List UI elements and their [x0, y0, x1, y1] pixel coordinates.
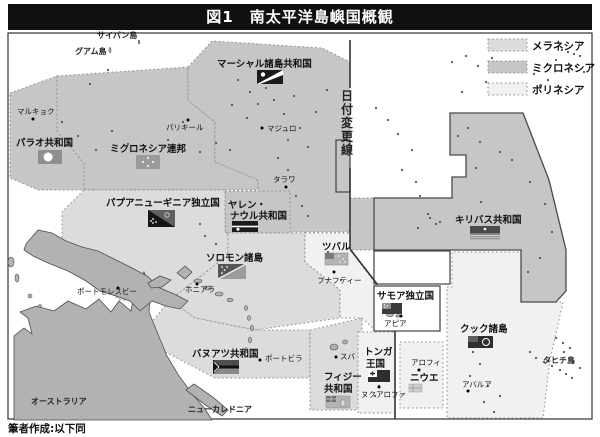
- place-label: グアム島: [75, 46, 106, 56]
- city-label: ポートビラ: [265, 354, 303, 363]
- island-dot: [472, 351, 474, 353]
- vanuatu-flag: [213, 360, 239, 374]
- island-dot: [579, 55, 581, 57]
- city-label: アロフィ: [411, 358, 441, 367]
- island-dot: [417, 227, 419, 229]
- fiji-island: [343, 340, 348, 344]
- island-dot: [529, 351, 531, 353]
- city-label: パリキール: [166, 123, 204, 132]
- maluku-island: [8, 257, 14, 267]
- cook-flag-part: [468, 336, 478, 342]
- country-label: パプアニューギニア独立国: [106, 197, 220, 209]
- island-dot: [511, 159, 513, 161]
- solomon-flag-part: [226, 266, 228, 268]
- island-dot: [307, 146, 309, 148]
- nauru-flag-part: [237, 228, 240, 231]
- palau-flag-part: [44, 153, 53, 162]
- island-dot: [467, 127, 469, 129]
- vanuatu-island: [251, 325, 254, 331]
- cook-flag: [468, 336, 493, 348]
- fiji-island: [330, 344, 338, 350]
- island-dot: [415, 181, 417, 183]
- city-label: フナフティー: [317, 276, 362, 285]
- solomon-island: [227, 298, 233, 302]
- country-label: ニウエ: [410, 373, 439, 384]
- figure-title-bar: 図1 南太平洋島嶼国概観: [8, 4, 592, 30]
- island-dot: [465, 55, 467, 57]
- nauru-flag-part: [232, 226, 258, 228]
- vanuatu-island: [245, 306, 248, 311]
- country-label: パラオ共和国: [16, 137, 73, 149]
- island-dot: [480, 201, 482, 203]
- island-dot: [551, 365, 553, 367]
- island-dot: [273, 99, 275, 101]
- country-label: クック諸島: [460, 323, 508, 335]
- capital-dot: [285, 186, 288, 189]
- samoa-flag-part: [382, 303, 391, 309]
- country-label: マーシャル諸島共和国: [217, 58, 312, 70]
- place-label: ニューカレドニア: [188, 405, 252, 414]
- island-dot: [569, 347, 571, 349]
- island-dot: [299, 127, 301, 129]
- island-dot: [555, 59, 557, 61]
- island-dot: [499, 151, 501, 153]
- island-dot: [555, 337, 557, 339]
- country-label: キリバス共和国: [455, 214, 522, 226]
- capital-dot: [333, 271, 336, 274]
- island-dot: [479, 141, 481, 143]
- png-flag-part: [152, 222, 154, 224]
- island-dot: [61, 121, 63, 123]
- samoa-flag-part: [384, 304, 385, 305]
- tonga-flag: [368, 370, 390, 382]
- country-label: ソロモン諸島: [206, 252, 264, 264]
- fiji-flag-part: [341, 400, 345, 406]
- island-dot: [237, 79, 239, 81]
- island-dot: [562, 342, 564, 344]
- country-label: 王国: [366, 359, 385, 370]
- island-dot: [439, 221, 441, 223]
- island-dot: [204, 235, 206, 237]
- island-dot: [535, 357, 537, 359]
- island-dot: [265, 87, 267, 89]
- island-dot: [375, 107, 377, 109]
- island-dot: [539, 257, 541, 259]
- marshall-flag-part: [261, 72, 265, 76]
- capital-dot: [261, 127, 264, 130]
- legend-swatch-pol: [488, 83, 527, 95]
- island-dot: [411, 149, 413, 151]
- png-flag-part: [150, 220, 152, 222]
- island-dot: [307, 215, 309, 217]
- island-dot: [326, 89, 328, 91]
- island-dot: [529, 181, 531, 183]
- island-dot: [475, 167, 477, 169]
- fiji-flag: [326, 396, 350, 408]
- city-label: ポートモレスビー: [77, 287, 137, 296]
- country-label: フィジー: [324, 372, 362, 383]
- city-label: スバ: [340, 352, 355, 361]
- country-label: ナウル共和国: [230, 210, 287, 222]
- kiribati-flag-part: [484, 228, 487, 231]
- capital-dot: [418, 369, 421, 372]
- capital-dot: [187, 119, 190, 122]
- solomon-island: [215, 292, 223, 296]
- small-island: [39, 305, 42, 308]
- legend-label: メラネシア: [532, 41, 585, 53]
- samoa-flag: [382, 303, 402, 314]
- place-label: サイパン島: [97, 30, 137, 40]
- figure-page: 日付変更線パラオ共和国ミクロネシア連邦マーシャル諸島共和国ヤレン・ナウル共和国キ…: [0, 0, 600, 437]
- city-label: ヌクアロファ: [361, 390, 406, 399]
- island-dot: [491, 57, 493, 59]
- island-dot: [229, 149, 231, 151]
- island-dot: [559, 369, 561, 371]
- island-dot: [469, 375, 471, 377]
- island-dot: [89, 83, 91, 85]
- island-dot: [401, 169, 403, 171]
- island-dot: [315, 111, 317, 113]
- legend-label: ミクロネシア: [532, 63, 595, 75]
- figure-title: 図1 南太平洋島嶼国概観: [206, 8, 393, 26]
- date-line-label: 日付変更線: [341, 89, 354, 157]
- vanuatu-island: [248, 316, 251, 321]
- country-label: トンガ: [364, 346, 393, 358]
- tuvalu-flag-part: [325, 253, 334, 259]
- legend-swatch-mel: [488, 39, 527, 51]
- island-dot: [287, 139, 289, 141]
- solomon-flag: [218, 264, 246, 279]
- island-dot: [387, 119, 389, 121]
- fsm-flag-part: [147, 157, 149, 159]
- island-dot: [257, 103, 259, 105]
- fsm-flag-part: [147, 165, 149, 167]
- island-dot: [249, 91, 251, 93]
- solomon-flag-part: [221, 266, 223, 268]
- island-dot: [167, 139, 169, 141]
- kiribati-flag: [470, 226, 500, 240]
- capital-dot: [32, 118, 35, 121]
- island-dot: [199, 151, 201, 153]
- island-dot: [479, 363, 481, 365]
- solomon-flag-part: [224, 269, 226, 271]
- island-dot: [435, 223, 437, 225]
- island-dot: [77, 135, 79, 137]
- saipan-island: [138, 40, 140, 44]
- guam-island: [109, 48, 111, 53]
- island-dot: [485, 81, 487, 83]
- city-label: アバルア: [462, 380, 492, 389]
- pacific-map-canvas: 日付変更線パラオ共和国ミクロネシア連邦マーシャル諸島共和国ヤレン・ナウル共和国キ…: [0, 0, 600, 437]
- capital-dot: [400, 315, 403, 318]
- place-label: タヒチ島: [543, 355, 575, 365]
- place-label: オーストラリア: [31, 397, 87, 406]
- samoa-flag-part: [387, 305, 388, 306]
- png-flag-part: [155, 221, 157, 223]
- island-dot: [283, 113, 285, 115]
- tuvalu-flag: [325, 253, 348, 265]
- island-dot: [199, 223, 201, 225]
- fsm-flag-part: [152, 161, 154, 163]
- island-dot: [571, 377, 573, 379]
- island-dot: [457, 135, 459, 137]
- capital-dot: [467, 390, 470, 393]
- gilbert-south-strip: [350, 198, 374, 250]
- island-dot: [295, 195, 297, 197]
- island-dot: [547, 79, 549, 81]
- tuvalu-flag-part: [344, 261, 346, 263]
- solomon-island: [194, 279, 202, 283]
- country-label: ミクロネシア連邦: [110, 143, 187, 155]
- maluku-island: [15, 274, 19, 282]
- country-label: サモア独立国: [377, 290, 434, 302]
- island-dot: [95, 149, 97, 151]
- island-dot: [483, 401, 485, 403]
- palau-flag: [38, 150, 62, 164]
- island-dot: [429, 217, 431, 219]
- island-dot: [493, 411, 495, 413]
- vanuatu-island: [249, 337, 252, 343]
- legend-label: ポリネシア: [532, 84, 585, 97]
- small-island: [28, 294, 32, 298]
- island-dot: [293, 95, 295, 97]
- island-dot: [107, 69, 109, 71]
- png-flag: [148, 210, 175, 227]
- island-dot: [573, 53, 575, 55]
- city-label: ホニアラ: [185, 285, 215, 294]
- island-dot: [544, 203, 546, 205]
- fsm-flag: [136, 155, 160, 169]
- island-dot: [527, 271, 529, 273]
- tuvalu-flag-part: [342, 258, 344, 260]
- source-caption: 筆者作成:以下同: [8, 421, 86, 436]
- island-dot: [246, 117, 248, 119]
- capital-dot: [335, 356, 338, 359]
- city-label: マジュロ: [267, 124, 296, 133]
- island-dot: [563, 351, 565, 353]
- tuvalu-flag-part: [339, 261, 341, 263]
- island-dot: [231, 104, 233, 106]
- island-dot: [579, 367, 581, 369]
- solomon-flag-part: [221, 272, 223, 274]
- island-dot: [499, 395, 501, 397]
- tokelau-white-box: [374, 251, 450, 284]
- country-label: バヌアツ共和国: [192, 348, 259, 360]
- island-dot: [215, 243, 217, 245]
- nauru-flag: [232, 221, 258, 232]
- capital-dot: [259, 359, 262, 362]
- island-dot: [427, 213, 429, 215]
- samoa-flag-part: [384, 307, 385, 308]
- city-label: タラワ: [273, 175, 296, 184]
- island-dot: [301, 205, 303, 207]
- island-dot: [551, 231, 553, 233]
- island-dot: [215, 142, 217, 144]
- island-dot: [397, 133, 399, 135]
- island-dot: [277, 157, 279, 159]
- island-dot: [111, 130, 113, 132]
- marshall-flag: [257, 70, 283, 84]
- country-label: ヤレン・: [228, 200, 266, 211]
- island-dot: [565, 373, 567, 375]
- city-label: アピア: [384, 319, 407, 328]
- country-label: 共和国: [324, 383, 353, 395]
- island-dot: [477, 65, 479, 67]
- island-dot: [461, 91, 463, 93]
- fsm-flag-part: [142, 161, 144, 163]
- niue-flag: [409, 384, 422, 392]
- png-flag-part: [152, 218, 154, 220]
- city-label: マルキョク: [17, 107, 55, 116]
- tuvalu-flag-part: [338, 255, 340, 257]
- island-dot: [419, 195, 421, 197]
- island-dot: [287, 169, 289, 171]
- capital-dot: [378, 386, 381, 389]
- legend-swatch-mic: [488, 61, 527, 73]
- country-label: ツバル: [322, 241, 351, 253]
- island-dot: [451, 61, 453, 63]
